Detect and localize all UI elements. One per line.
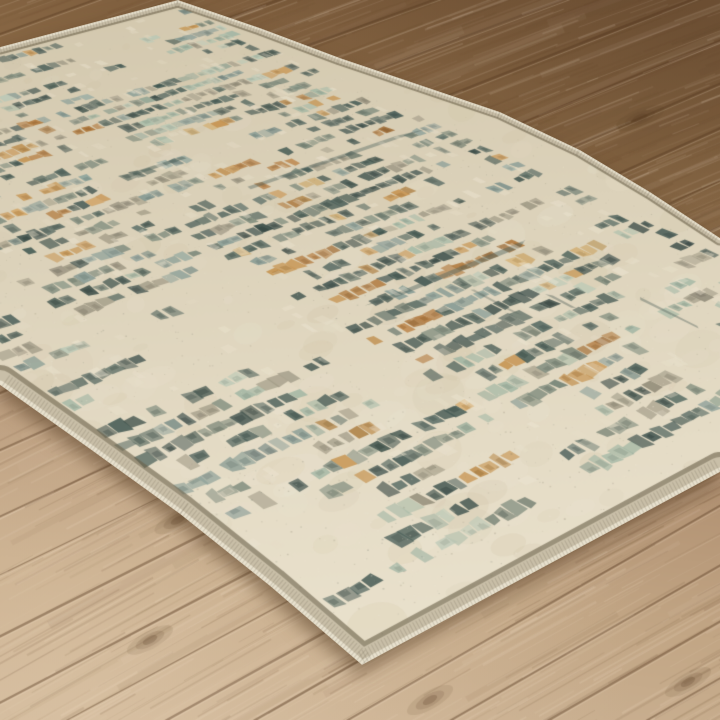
rug-pattern-canvas <box>0 0 720 720</box>
rug-product-photo <box>0 0 720 720</box>
area-rug <box>0 0 720 720</box>
